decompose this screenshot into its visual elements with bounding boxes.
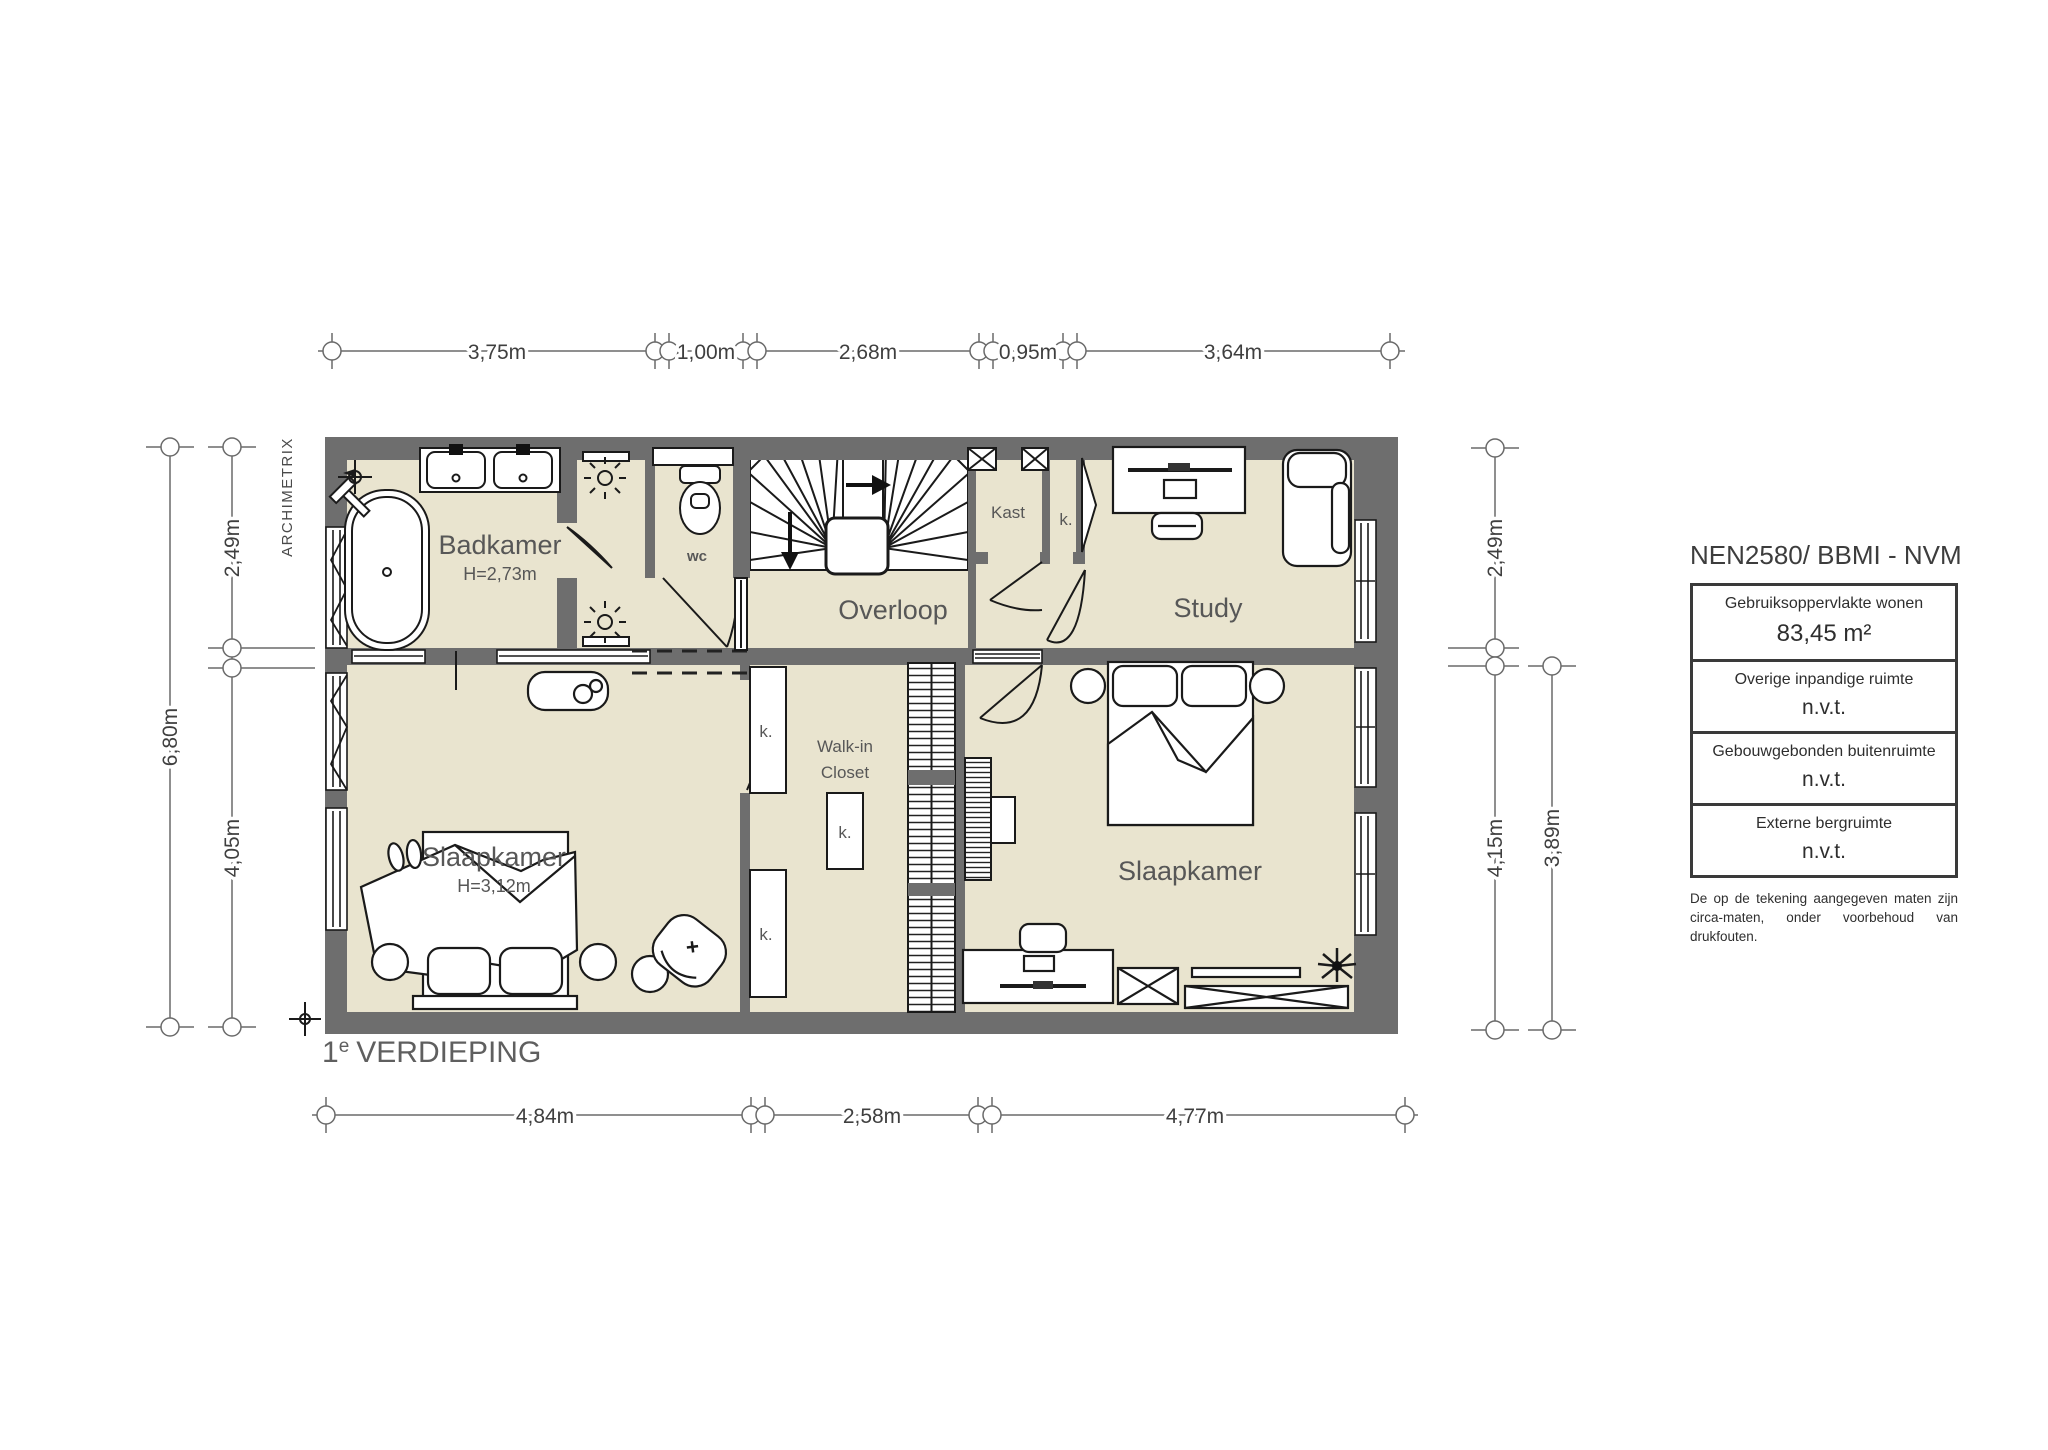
disclaimer-line: De op de tekening aangegeven maten zijn [1690, 890, 1958, 909]
room-label-overloop: Overloop [838, 595, 948, 625]
room-label-slaapkamer-left: Slaapkamer [422, 842, 566, 872]
dim-right-inner: 4,15m [1484, 819, 1507, 877]
room-label-badkamer: Badkamer [438, 530, 561, 560]
legend-row-value: n.v.t. [1697, 768, 1951, 792]
closet-label-k: k. [759, 722, 772, 741]
legend-row-value: n.v.t. [1697, 696, 1951, 720]
legend-row-label: Gebruiksoppervlakte wonen [1697, 595, 1951, 613]
floor-title-text: VERDIEPING [356, 1036, 541, 1069]
room-height-slaapkamer-left: H=3,12m [457, 876, 531, 896]
dim-right-upper: 2,49m [1484, 519, 1507, 577]
legend-row-label: Gebouwgebonden buitenruimte [1697, 743, 1951, 761]
toilet [680, 466, 720, 534]
floor-title-sup: e [339, 1036, 350, 1057]
dim-bottom-3: 4,77m [1166, 1105, 1224, 1128]
legend-row-value: n.v.t. [1697, 840, 1951, 864]
radiator [1118, 968, 1178, 1004]
legend-disclaimer: De op de tekening aangegeven maten zijn … [1690, 890, 1958, 947]
bench [528, 672, 608, 710]
nightstand [1071, 669, 1105, 703]
legend-row: Gebouwgebonden buitenruimte n.v.t. [1693, 734, 1955, 806]
room-label-study: Study [1173, 593, 1243, 623]
dim-bottom-2: 2,58m [843, 1105, 901, 1128]
floor-title-number: 1 [322, 1036, 339, 1069]
disclaimer-line: circa-maten, onder voorbehoud van drukfo… [1690, 909, 1958, 947]
legend-table: Gebruiksoppervlakte wonen 83,45 m² Overi… [1690, 583, 1958, 878]
closet-label-k: k. [1059, 510, 1072, 529]
room-label-kast: Kast [991, 503, 1025, 522]
benchmark-icon [289, 1002, 321, 1036]
room-label-slaapkamer-right: Slaapkamer [1118, 856, 1262, 886]
dim-top-1: 3,75m [468, 341, 526, 364]
daybed [1283, 450, 1351, 566]
legend-row-label: Overige inpandige ruimte [1697, 671, 1951, 689]
staircase [750, 448, 968, 574]
dim-top-5: 3,64m [1204, 341, 1262, 364]
closet-label-k: k. [838, 823, 851, 842]
room-label-wc: wc [686, 548, 707, 565]
dimension-line-right [1448, 439, 1576, 1039]
area-legend: NEN2580/ BBMI - NVM Gebruiksoppervlakte … [1690, 540, 1958, 947]
closet-label-k: k. [759, 925, 772, 944]
floorplan-page: Badkamer H=2,73m wc Overloop Kast k. Stu… [0, 0, 2048, 1450]
dim-left-upper: 2,49m [221, 519, 244, 577]
legend-row-value: 83,45 m² [1697, 620, 1951, 648]
dim-right-outer: 3,89m [1541, 809, 1564, 867]
room-label-walkin-line1: Walk-in [817, 737, 873, 756]
dim-top-2: 1,00m [677, 341, 735, 364]
legend-row: Overige inpandige ruimte n.v.t. [1693, 662, 1955, 734]
dim-bottom-1: 4,84m [516, 1105, 574, 1128]
dim-top-4: 0,95m [999, 341, 1057, 364]
nightstand [1250, 669, 1284, 703]
floor-title: 1eVERDIEPING [322, 1036, 541, 1069]
architect-brand-label: ARCHIMETRIX [279, 437, 296, 557]
legend-row-label: Externe bergruimte [1697, 815, 1951, 833]
dim-left-total: 6,80m [159, 708, 182, 766]
nightstand [372, 944, 408, 980]
dim-left-lower: 4,05m [221, 819, 244, 877]
legend-row: Externe bergruimte n.v.t. [1693, 806, 1955, 875]
nightstand [580, 944, 616, 980]
wardrobe-strip [908, 663, 955, 1012]
bed [1108, 662, 1253, 825]
dim-top-3: 2,68m [839, 341, 897, 364]
room-height-badkamer: H=2,73m [463, 564, 537, 584]
legend-title: NEN2580/ BBMI - NVM [1690, 540, 1958, 571]
room-label-walkin-line2: Closet [821, 763, 869, 782]
legend-row: Gebruiksoppervlakte wonen 83,45 m² [1693, 586, 1955, 662]
